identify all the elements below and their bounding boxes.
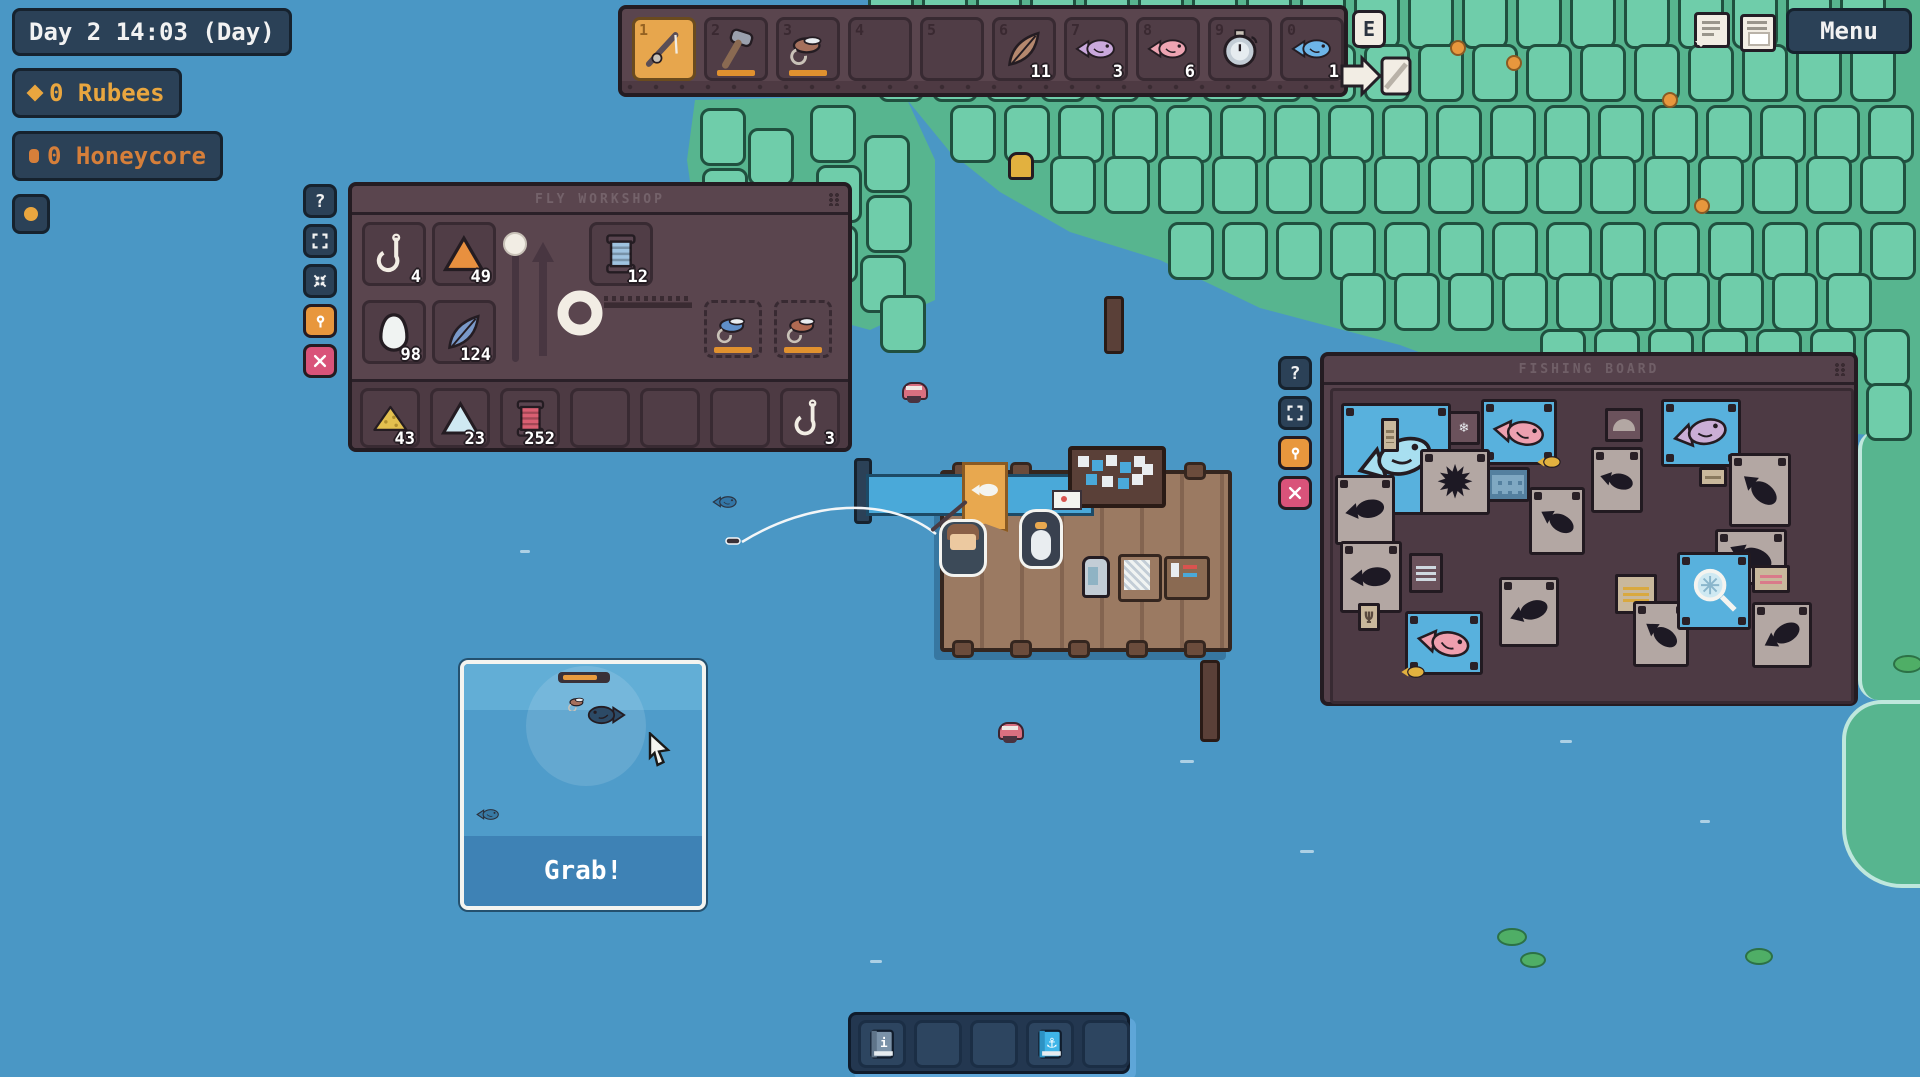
dock-post: [1184, 462, 1206, 480]
tree: [1806, 156, 1852, 214]
board-title: FISHING BOARD: [1519, 362, 1660, 377]
workshop-help-button[interactable]: ?: [303, 184, 337, 218]
pin-icon: [1345, 546, 1353, 554]
tree: [1610, 273, 1656, 331]
tree: [1864, 329, 1910, 387]
player-face: [950, 534, 976, 550]
calendar-grid: [1492, 475, 1523, 494]
interact-key-badge: E: [1352, 10, 1386, 48]
water-sparkle: [1300, 850, 1314, 853]
pin-icon: [1546, 582, 1554, 590]
jar: [1082, 556, 1110, 598]
tree: [1772, 273, 1818, 331]
tree: [1598, 105, 1644, 163]
tree: [1708, 222, 1754, 280]
buoy: [902, 382, 926, 404]
tree: [1448, 273, 1494, 331]
tree: [1436, 105, 1482, 163]
item-count: 98: [401, 345, 421, 365]
honeycore-badge: 0 Honeycore: [12, 131, 223, 181]
fish-silhouette: [1595, 459, 1640, 501]
flower: [1450, 40, 1466, 56]
honeycore-label: 0 Honeycore: [47, 142, 206, 170]
item-count: 4: [411, 267, 421, 287]
dock-post: [1010, 640, 1032, 658]
clock-badge: Day 2 14:03 (Day): [12, 8, 292, 56]
pin-icon: [1389, 546, 1397, 554]
slot-number: 8: [1143, 21, 1152, 39]
item-icon: ⚓: [1035, 1029, 1065, 1059]
fishing-board-panel: FISHING BOARD ❄ ✹ Ψ: [1320, 352, 1858, 706]
dock-post: [1184, 640, 1206, 658]
tree: [864, 135, 910, 193]
hotbar-slot-5[interactable]: 5: [920, 17, 984, 81]
gold-fish-marker: [1536, 454, 1562, 468]
tree: [1428, 156, 1474, 214]
stow-hint: [1338, 54, 1414, 98]
board-card-silhouette[interactable]: ✹: [1420, 449, 1490, 515]
water-sparkle: [870, 960, 882, 963]
player-character: [942, 522, 984, 574]
tree: [1580, 44, 1626, 102]
slot-number: 0: [1287, 21, 1296, 39]
workshop-resize-button[interactable]: [303, 224, 337, 258]
mooring-post: [1200, 660, 1220, 742]
pin-icon: [1504, 582, 1512, 590]
fly-workshop-panel: FLY WORKSHOP 4 49 98 124 12: [348, 182, 852, 452]
hotbar-slot-0[interactable]: 0 1: [1280, 17, 1344, 81]
workshop-collapse-button[interactable]: [303, 264, 337, 298]
toolbar-slot-empty[interactable]: [1082, 1020, 1130, 1068]
tree: [1490, 105, 1536, 163]
rubees-badge: 0 Rubees: [12, 68, 182, 118]
board-card-discovered-fish[interactable]: [1481, 399, 1557, 465]
fish-silhouette: [1347, 557, 1396, 597]
pin-icon: [1346, 408, 1354, 416]
small-fish: [476, 806, 500, 819]
item-icon: i: [867, 1029, 897, 1059]
item-count: 49: [471, 267, 491, 287]
arrow-right-icon: [1342, 58, 1380, 94]
fish-silhouette: [1755, 610, 1810, 661]
noticeboard: [1068, 446, 1166, 508]
tree: [1814, 105, 1860, 163]
board-card-silhouette[interactable]: [1335, 475, 1395, 545]
hotbar-lip: [622, 81, 1344, 93]
board-card-note[interactable]: ❄: [1448, 411, 1480, 445]
item-count: 1: [1329, 62, 1339, 82]
item-icon: [979, 1029, 1009, 1059]
board-card-note[interactable]: [1699, 467, 1727, 487]
interact-key-label: E: [1363, 17, 1375, 41]
pin-icon: [1682, 617, 1690, 625]
item-count: 3: [1113, 62, 1123, 82]
tree: [700, 108, 746, 166]
tree: [1276, 222, 1322, 280]
workshop-material-slot-powder[interactable]: 43: [360, 388, 420, 448]
item-count: 3: [825, 429, 835, 449]
item-count: 6: [1185, 62, 1195, 82]
tree: [1050, 156, 1096, 214]
item-icon: [859, 28, 901, 70]
pin-icon: [1340, 480, 1348, 488]
toolbar-slot-empty[interactable]: [970, 1020, 1018, 1068]
biting-fish: [586, 704, 626, 726]
tree: [1384, 222, 1430, 280]
board-card-silhouette[interactable]: [1529, 487, 1585, 555]
pin-icon: [1728, 404, 1736, 412]
pin-icon: [1438, 408, 1446, 416]
bite-progress-bar: [558, 672, 610, 683]
workshop-material-slot-empty[interactable]: [710, 388, 770, 448]
board-card-note[interactable]: Ψ: [1358, 603, 1380, 631]
dock-post: [952, 640, 974, 658]
equipped-underline: [717, 70, 755, 76]
pin-icon: [1738, 557, 1746, 565]
penguin-npc[interactable]: [1022, 512, 1060, 566]
fish-silhouette: ✹: [1436, 459, 1475, 505]
board-card-discovered-fish[interactable]: [1405, 611, 1483, 675]
slot-number: 7: [1071, 21, 1080, 39]
tree: [1328, 105, 1374, 163]
item-count: 43: [395, 429, 415, 449]
mouse-cursor: [645, 732, 673, 768]
tree: [1718, 273, 1764, 331]
fish-icon: [1490, 412, 1549, 452]
hotbar: 1 2 3 4 5 6 11 7 3 8 6 9 0: [618, 5, 1348, 97]
net-icon: [1688, 563, 1740, 619]
grab-popup[interactable]: Grab!: [460, 660, 706, 910]
lily-pad: [1745, 948, 1773, 965]
tree: [1816, 222, 1862, 280]
workshop-material-slot-spool[interactable]: 252: [500, 388, 560, 448]
board-card-note[interactable]: [1381, 418, 1399, 452]
item-count: 252: [524, 429, 555, 449]
tree: [1330, 222, 1376, 280]
honeycore-icon: [29, 149, 39, 163]
board-card-note[interactable]: [1409, 553, 1443, 593]
item-count: 12: [628, 267, 648, 287]
chat-icon[interactable]: [1694, 12, 1730, 48]
tree: [1502, 273, 1548, 331]
lily-pad: [1520, 952, 1546, 968]
slot-number: 4: [855, 21, 864, 39]
drag-handle-icon[interactable]: [1834, 362, 1846, 376]
tree: [1220, 105, 1266, 163]
workshop-window-buttons: ?: [303, 184, 337, 384]
tree: [1760, 105, 1806, 163]
equipped-underline: [789, 70, 827, 76]
pin-icon: [1486, 404, 1494, 412]
hotbar-slot-3[interactable]: 3: [776, 17, 840, 81]
pin-icon: [1477, 454, 1485, 462]
pin-icon: [1666, 404, 1674, 412]
pin-icon: [1470, 662, 1478, 670]
tree: [1624, 0, 1670, 49]
tree: [950, 105, 996, 163]
water-sparkle: [1180, 760, 1194, 763]
tree: [1570, 0, 1616, 49]
tree: [1212, 156, 1258, 214]
tree: [1526, 44, 1572, 102]
item-icon: [643, 28, 685, 70]
hotbar-slot-9[interactable]: 9: [1208, 17, 1272, 81]
workshop-material-slot-empty[interactable]: [640, 388, 700, 448]
slot-number: 1: [639, 21, 648, 39]
rubees-label: 0 Rubees: [49, 79, 165, 107]
board-help-button[interactable]: ?: [1278, 356, 1312, 390]
penguin-belly: [1031, 530, 1051, 560]
pin-icon: [1470, 616, 1478, 624]
gold-fish-marker: [1400, 664, 1426, 678]
pin-icon: [1544, 404, 1552, 412]
tree: [1742, 44, 1788, 102]
water-sparkle: [1560, 740, 1572, 743]
tree: [1652, 105, 1698, 163]
tree: [1222, 222, 1268, 280]
lily-pad: [1893, 655, 1920, 673]
hotbar-slot-6[interactable]: 6 11: [992, 17, 1056, 81]
buff-badge: [12, 194, 50, 234]
board-card-note[interactable]: [1752, 565, 1790, 593]
tree: [1546, 222, 1592, 280]
note-lines: [1705, 473, 1720, 481]
clock-label: Day 2 14:03 (Day): [29, 18, 275, 46]
flower: [1662, 92, 1678, 108]
workshop-pin-button[interactable]: [303, 304, 337, 338]
tree: [1408, 0, 1454, 49]
tree: [1706, 105, 1752, 163]
fish-silhouette: [1340, 489, 1390, 531]
pin-icon: [1572, 492, 1580, 500]
svg-text:⚓: ⚓: [1046, 1037, 1058, 1052]
item-icon: [923, 1029, 953, 1059]
tree: [1866, 383, 1912, 441]
board-titlebar[interactable]: FISHING BOARD: [1324, 356, 1854, 385]
tree: [1590, 156, 1636, 214]
tree: [880, 295, 926, 353]
tree: [810, 105, 856, 163]
tree: [1492, 222, 1538, 280]
tree: [1600, 222, 1646, 280]
slot-number: 6: [999, 21, 1008, 39]
item-icon: [931, 28, 973, 70]
item-count: 23: [465, 429, 485, 449]
penguin-flag: [1052, 490, 1082, 510]
board-resize-button[interactable]: [1278, 396, 1312, 430]
item-icon: [1147, 28, 1189, 70]
tree: [1394, 273, 1440, 331]
pin-icon: [1596, 452, 1604, 460]
tree: [1654, 222, 1700, 280]
flower: [1506, 55, 1522, 71]
mooring-post: [1104, 296, 1124, 354]
water-sparkle: [1700, 820, 1710, 823]
board-card-calendar[interactable]: [1486, 467, 1530, 502]
item-icon: [791, 399, 830, 438]
penguin-beak: [1035, 522, 1047, 529]
item-icon: [1219, 28, 1261, 70]
item-count: 11: [1031, 62, 1051, 82]
tree: [1556, 273, 1602, 331]
pin-icon: [1666, 454, 1674, 462]
pin-icon: [1682, 557, 1690, 565]
tree: [1462, 0, 1508, 49]
fish-shadow: [712, 494, 738, 508]
tree: [1752, 156, 1798, 214]
tree: [1536, 156, 1582, 214]
board-corkboard: ❄ ✹ Ψ: [1330, 388, 1854, 704]
tree: [1826, 273, 1872, 331]
hotbar-slot-1[interactable]: 1: [632, 17, 696, 81]
item-icon: [1291, 28, 1333, 70]
slot-number: 5: [927, 21, 936, 39]
lily-pad: [1497, 928, 1527, 946]
hotbar-slot-2[interactable]: 2: [704, 17, 768, 81]
game-screen: Grab! Day 2 14:03 (Day) 0 Rubees 0 Honey…: [0, 0, 1920, 1077]
hotbar-slot-4[interactable]: 4: [848, 17, 912, 81]
pin-icon: [1738, 617, 1746, 625]
item-icon: [715, 28, 757, 70]
pin-icon: [1774, 534, 1782, 542]
tree: [1266, 156, 1312, 214]
board-card-net[interactable]: [1677, 552, 1751, 630]
net-crate: [1118, 554, 1162, 602]
pin-icon: [1778, 458, 1786, 466]
board-card-silhouette[interactable]: [1499, 577, 1559, 647]
workshop-material-slot-cone[interactable]: 23: [430, 388, 490, 448]
workshop-material-slot-empty[interactable]: [570, 388, 630, 448]
tree: [1544, 105, 1590, 163]
work-stand: [1164, 556, 1210, 600]
pin-icon: [1734, 458, 1742, 466]
journal-toolbar: i ⚓: [848, 1012, 1130, 1074]
toolbar-slot-book-info[interactable]: i: [858, 1020, 906, 1068]
tree: [1870, 222, 1916, 280]
save-icon[interactable]: [1740, 14, 1776, 52]
tree: [1058, 105, 1104, 163]
pin-icon: [1720, 534, 1728, 542]
southeast-island: [1842, 700, 1920, 888]
tree: [1104, 156, 1150, 214]
toolbar-slot-empty[interactable]: [914, 1020, 962, 1068]
tree: [1374, 156, 1420, 214]
rubee-icon: [27, 85, 44, 102]
item-icon: [1091, 1029, 1121, 1059]
tree: [748, 128, 794, 186]
item-icon: [721, 399, 760, 438]
item-icon: [787, 28, 829, 70]
slot-number: 9: [1215, 21, 1224, 39]
tree: [1482, 156, 1528, 214]
board-window-buttons: ?: [1278, 356, 1312, 516]
workshop-close-button[interactable]: [303, 344, 337, 378]
workshop-material-slot-hook[interactable]: 3: [780, 388, 840, 448]
note-lines: [1386, 427, 1394, 444]
tree: [1472, 44, 1518, 102]
tree: [866, 195, 912, 253]
slot-number: 2: [711, 21, 720, 39]
note-lines: [1760, 572, 1782, 585]
snowflake-icon: ❄: [1459, 422, 1470, 435]
trident-icon: Ψ: [1364, 608, 1374, 627]
item-icon: [651, 399, 690, 438]
tree: [1168, 222, 1214, 280]
tree: [1762, 222, 1808, 280]
pin-icon: [1425, 454, 1433, 462]
board-card-note[interactable]: [1605, 408, 1643, 442]
tree: [1382, 105, 1428, 163]
flower: [1694, 198, 1710, 214]
hotbar-slot-7[interactable]: 7 3: [1064, 17, 1128, 81]
tree: [1438, 222, 1484, 280]
fish-icon: [1414, 622, 1475, 663]
board-pin-button[interactable]: [1278, 436, 1312, 470]
menu-button-label: Menu: [1820, 17, 1878, 45]
fish-silhouette: [1502, 588, 1556, 636]
dock-post: [1126, 640, 1148, 658]
item-count: 124: [460, 345, 491, 365]
item-icon: [1075, 28, 1117, 70]
pin-icon: [1534, 492, 1542, 500]
tree: [1340, 273, 1386, 331]
board-card-silhouette[interactable]: [1729, 453, 1791, 527]
tree: [1868, 105, 1914, 163]
svg-text:i: i: [880, 1035, 888, 1050]
pin-icon: [1382, 480, 1390, 488]
tree: [1112, 105, 1158, 163]
dock-post: [1068, 640, 1090, 658]
tree: [1320, 156, 1366, 214]
pin-icon: [1410, 616, 1418, 624]
grab-label: Grab!: [464, 856, 702, 886]
hotbar-slot-8[interactable]: 8 6: [1136, 17, 1200, 81]
tree: [1860, 156, 1906, 214]
pin-icon: [1630, 452, 1638, 460]
fish-icon: [1669, 410, 1733, 455]
arch-icon: [1613, 419, 1635, 431]
fish-silhouette: [1531, 496, 1584, 546]
toolbar-slot-book-fish[interactable]: ⚓: [1026, 1020, 1074, 1068]
buoy: [998, 722, 1022, 744]
tree: [1166, 105, 1212, 163]
tree: [1274, 105, 1320, 163]
pin-icon: [1757, 607, 1765, 615]
board-card-silhouette[interactable]: [1591, 447, 1643, 513]
buff-icon: [24, 207, 38, 221]
pin-icon: [1799, 607, 1807, 615]
tree: [1516, 0, 1562, 49]
pin-icon: [1638, 606, 1646, 614]
tree: [1158, 156, 1204, 214]
note-lines: [1416, 563, 1436, 583]
water-sparkle: [520, 550, 530, 553]
board-card-silhouette[interactable]: [1752, 602, 1812, 668]
tree: [1664, 273, 1710, 331]
beehive: [1008, 152, 1034, 180]
fish-silhouette: [1730, 461, 1789, 519]
slot-number: 3: [783, 21, 792, 39]
menu-button[interactable]: Menu: [1786, 8, 1912, 54]
tree: [1644, 156, 1690, 214]
board-close-button[interactable]: [1278, 476, 1312, 510]
item-icon: [581, 399, 620, 438]
